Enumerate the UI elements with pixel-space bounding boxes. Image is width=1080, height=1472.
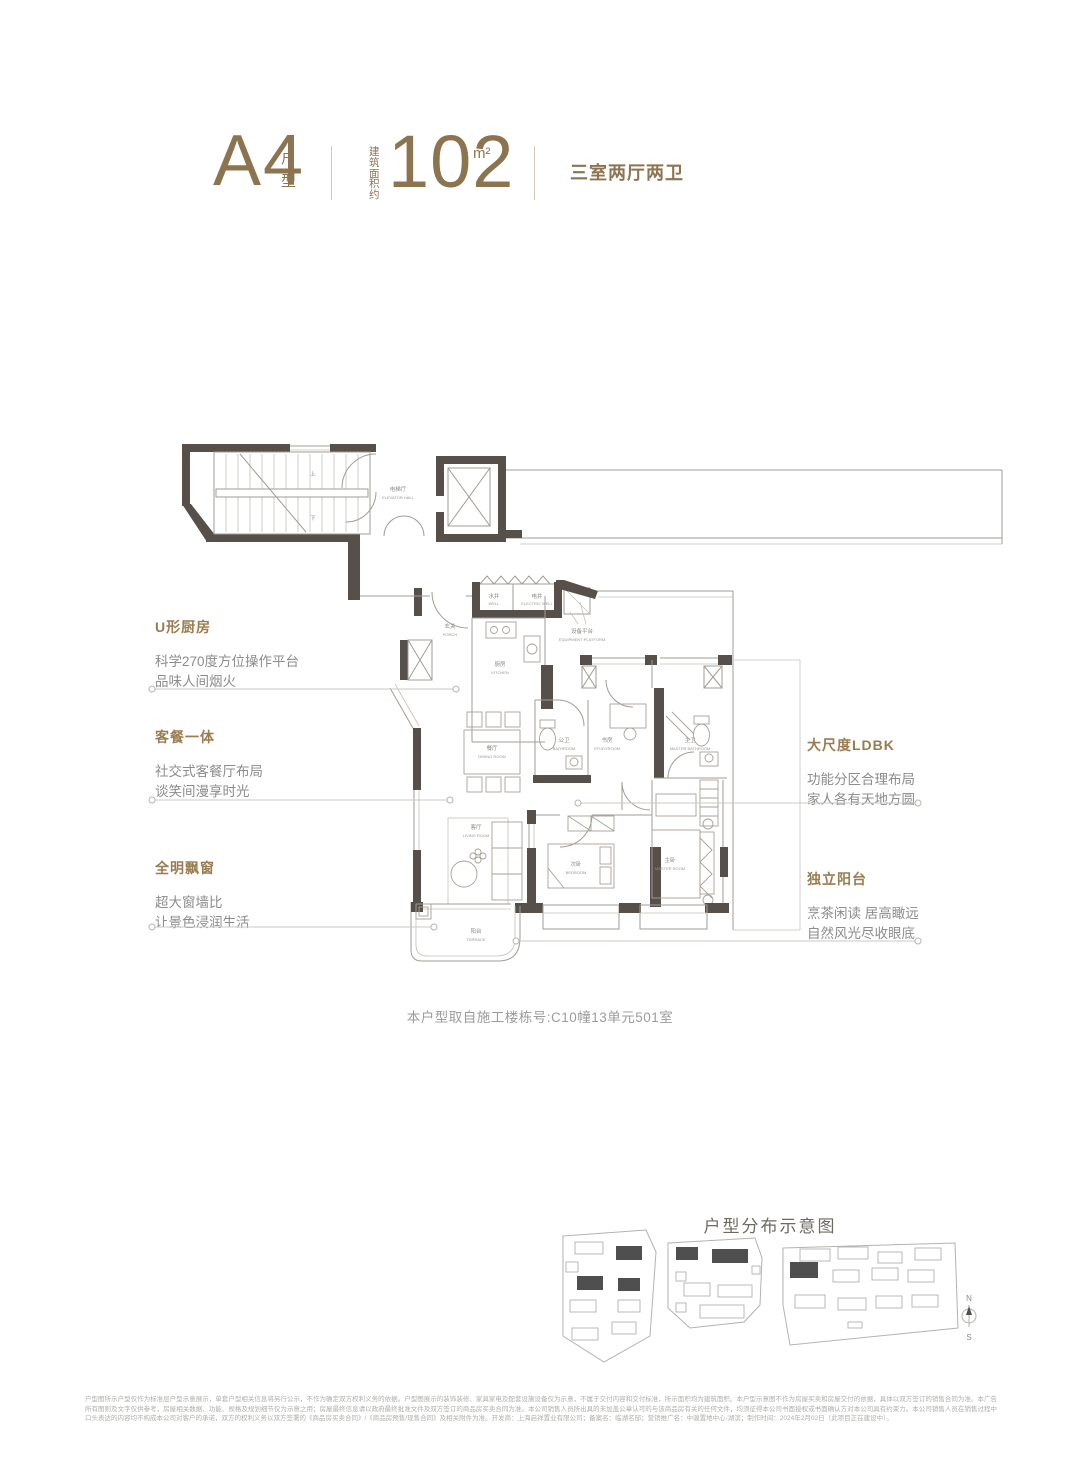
siteplan-drawing: N S	[545, 1225, 995, 1375]
master-bathroom-label-zh: 主卫	[684, 736, 696, 744]
floorplan-caption: 本户型取自施工楼栋号:C10幢13单元501室	[0, 1006, 1080, 1026]
stairs-up-label: 上	[310, 470, 316, 478]
kitchen-label-zh: 厨房	[494, 660, 506, 668]
study: 书房 STUDYROOM	[580, 655, 657, 751]
terrace: 阳台 TERRACE	[411, 902, 520, 961]
living-label-zh: 客厅	[470, 823, 482, 831]
elevator-hall-label-en: ELEVATOR HALL	[382, 495, 415, 500]
living-room: 客厅 LIVING ROOM	[423, 810, 536, 909]
porch-label-en: PORCH	[443, 632, 458, 637]
elevator-shaft	[436, 456, 506, 542]
terrace-label-zh: 阳台	[470, 927, 482, 935]
compass-icon: N S	[962, 1294, 976, 1342]
master-bedroom-label-en: MASTER ROOM	[655, 866, 685, 871]
well-label-en: WELL	[489, 601, 501, 606]
dining-label-zh: 餐厅	[486, 744, 498, 752]
bathroom-label-en: BATHROOM	[553, 746, 576, 751]
siteplan-parcel-1	[563, 1230, 656, 1362]
compass-north-label: N	[966, 1294, 972, 1303]
master-bedroom-label-zh: 主卧	[664, 856, 676, 864]
kitchen-label-en: KITCHEN	[491, 670, 509, 675]
public-corridor	[506, 470, 1002, 544]
area-unit: m²	[473, 145, 491, 162]
compass-south-label: S	[966, 1333, 971, 1342]
porch: 玄关 PORCH	[360, 588, 472, 680]
disclaimer-text: 户型图所示户型仅作为标准层户型示意展示，单套户型相关信息将另行公示，不作为确定双…	[85, 1395, 997, 1424]
electric-well-label-en: ELECTRIC WELL	[521, 601, 554, 606]
left-exterior-wall	[390, 684, 421, 902]
study-label-en: STUDYROOM	[594, 746, 620, 751]
area-value: 102	[388, 126, 514, 198]
kitchen: 厨房 KITCHEN	[472, 596, 545, 742]
siteplan-parcel-2	[668, 1238, 762, 1328]
living-label-en: LIVING ROOM	[463, 833, 490, 838]
master-bathroom-label-en: MASTER BATHROOM	[670, 746, 711, 751]
well-label-zh: 水井	[488, 592, 500, 600]
bedroom-label-en: BEDROOM	[566, 870, 587, 875]
siteplan-parcel-3	[783, 1243, 958, 1345]
rooms-summary: 三室两厅两卫	[570, 159, 684, 185]
equipment-platform-label-zh: 设备平台	[571, 627, 594, 635]
porch-label-zh: 玄关	[444, 622, 456, 630]
bedroom-label-zh: 次卧	[570, 860, 582, 868]
equipment-platform: 设备平台 EQUIPMENT PLATFORM	[559, 588, 605, 642]
study-label-zh: 书房	[601, 736, 613, 744]
dining-label-en: DINING ROOM	[478, 754, 506, 759]
plan-type-label: 户型	[281, 147, 297, 193]
stairs-down-label: 下	[310, 515, 316, 522]
area-label: 建筑面积约	[369, 147, 381, 201]
electric-well-label-zh: 电井	[531, 592, 543, 600]
header-divider	[331, 146, 332, 200]
header-divider	[534, 146, 535, 200]
terrace-label-en: TERRACE	[466, 937, 485, 942]
service-wells: 水井 WELL 电井 ELECTRIC WELL	[472, 576, 562, 618]
master-bathroom: 主卫 MASTER BATHROOM	[652, 655, 732, 778]
bathroom-label-zh: 公卫	[558, 737, 570, 744]
floorplan-drawing: 上 下 电梯厅 ELEVATOR HALL 水井 WELL	[140, 430, 1010, 1000]
equipment-platform-label-en: EQUIPMENT PLATFORM	[559, 637, 605, 642]
elevator-hall-label-zh: 电梯厅	[390, 485, 407, 493]
